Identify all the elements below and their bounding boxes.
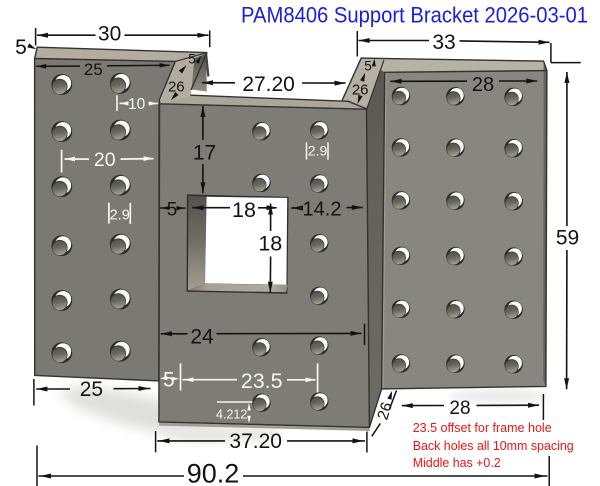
svg-text:2.9: 2.9: [110, 208, 130, 224]
svg-text:PAM8406 Support Bracket 2026-0: PAM8406 Support Bracket 2026-03-01: [241, 2, 588, 27]
svg-text:25: 25: [84, 60, 103, 79]
svg-text:Back holes all 10mm spacing: Back holes all 10mm spacing: [413, 438, 574, 453]
svg-text:Middle has +0.2: Middle has +0.2: [413, 455, 501, 470]
svg-text:5: 5: [188, 52, 196, 67]
svg-text:30: 30: [98, 22, 121, 45]
svg-text:14.2: 14.2: [303, 199, 342, 221]
svg-text:17: 17: [193, 142, 216, 165]
svg-text:33: 33: [432, 31, 455, 54]
svg-text:5: 5: [163, 368, 175, 391]
svg-text:10: 10: [128, 96, 146, 113]
svg-text:2.9: 2.9: [308, 143, 328, 159]
svg-text:18: 18: [258, 232, 282, 256]
svg-text:5: 5: [15, 36, 27, 59]
svg-text:23.5 offset for frame hole: 23.5 offset for frame hole: [413, 420, 552, 435]
svg-text:25: 25: [80, 378, 103, 401]
svg-text:27.20: 27.20: [242, 73, 295, 96]
svg-text:59: 59: [556, 226, 579, 249]
svg-text:24: 24: [190, 325, 214, 348]
svg-text:4.212: 4.212: [216, 407, 247, 421]
svg-text:20: 20: [94, 149, 116, 171]
svg-text:26: 26: [168, 78, 185, 95]
svg-text:28: 28: [472, 74, 494, 96]
svg-text:5: 5: [364, 58, 372, 73]
svg-text:28: 28: [449, 398, 470, 419]
svg-text:5: 5: [167, 200, 178, 221]
svg-text:37.20: 37.20: [229, 430, 282, 453]
svg-text:90.2: 90.2: [187, 458, 240, 486]
svg-text:23.5: 23.5: [241, 369, 283, 393]
svg-text:18: 18: [232, 198, 256, 222]
